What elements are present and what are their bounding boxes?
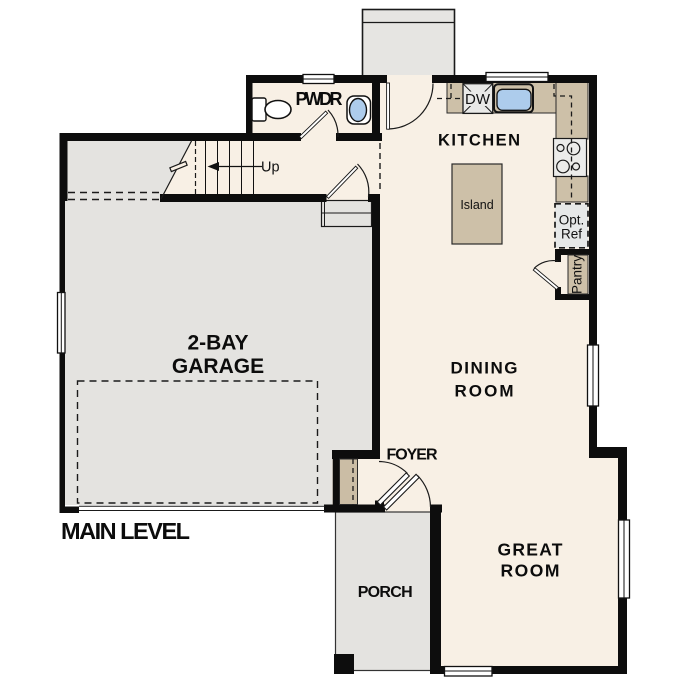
svg-text:FOYER: FOYER bbox=[387, 447, 438, 464]
svg-text:GARAGE: GARAGE bbox=[172, 355, 264, 378]
svg-text:Ref: Ref bbox=[561, 227, 582, 242]
svg-text:Pantry: Pantry bbox=[570, 255, 585, 294]
svg-text:2-BAY: 2-BAY bbox=[187, 332, 248, 355]
svg-text:ROOM: ROOM bbox=[501, 561, 560, 581]
svg-text:Island: Island bbox=[460, 198, 493, 212]
svg-text:MAIN LEVEL: MAIN LEVEL bbox=[61, 518, 190, 544]
svg-text:PWDR: PWDR bbox=[296, 89, 343, 109]
svg-text:Opt.: Opt. bbox=[559, 213, 585, 228]
svg-text:ROOM: ROOM bbox=[455, 382, 514, 401]
svg-text:DINING: DINING bbox=[451, 359, 518, 378]
svg-text:DW: DW bbox=[465, 91, 491, 108]
svg-text:Up: Up bbox=[261, 160, 280, 176]
svg-text:GREAT: GREAT bbox=[498, 540, 563, 560]
svg-text:PORCH: PORCH bbox=[358, 584, 413, 601]
